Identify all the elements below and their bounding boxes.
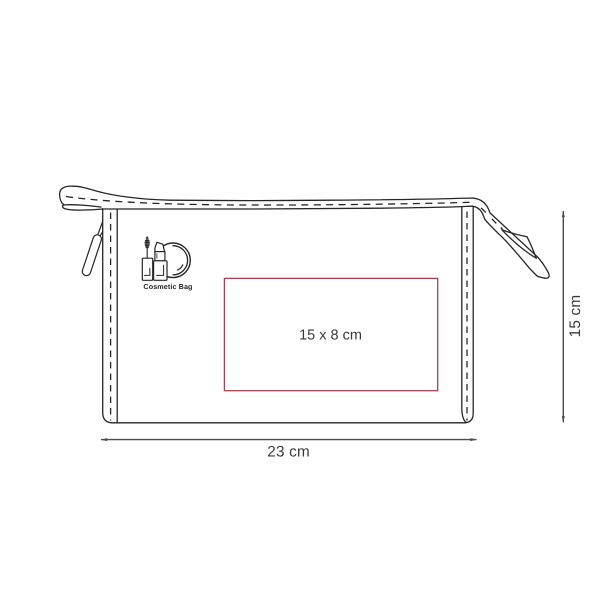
- svg-text:Cosmetic Bag: Cosmetic Bag: [143, 282, 192, 291]
- svg-text:15 x 8 cm: 15 x 8 cm: [299, 328, 362, 344]
- svg-text:23 cm: 23 cm: [267, 444, 310, 461]
- svg-text:15 cm: 15 cm: [567, 295, 584, 338]
